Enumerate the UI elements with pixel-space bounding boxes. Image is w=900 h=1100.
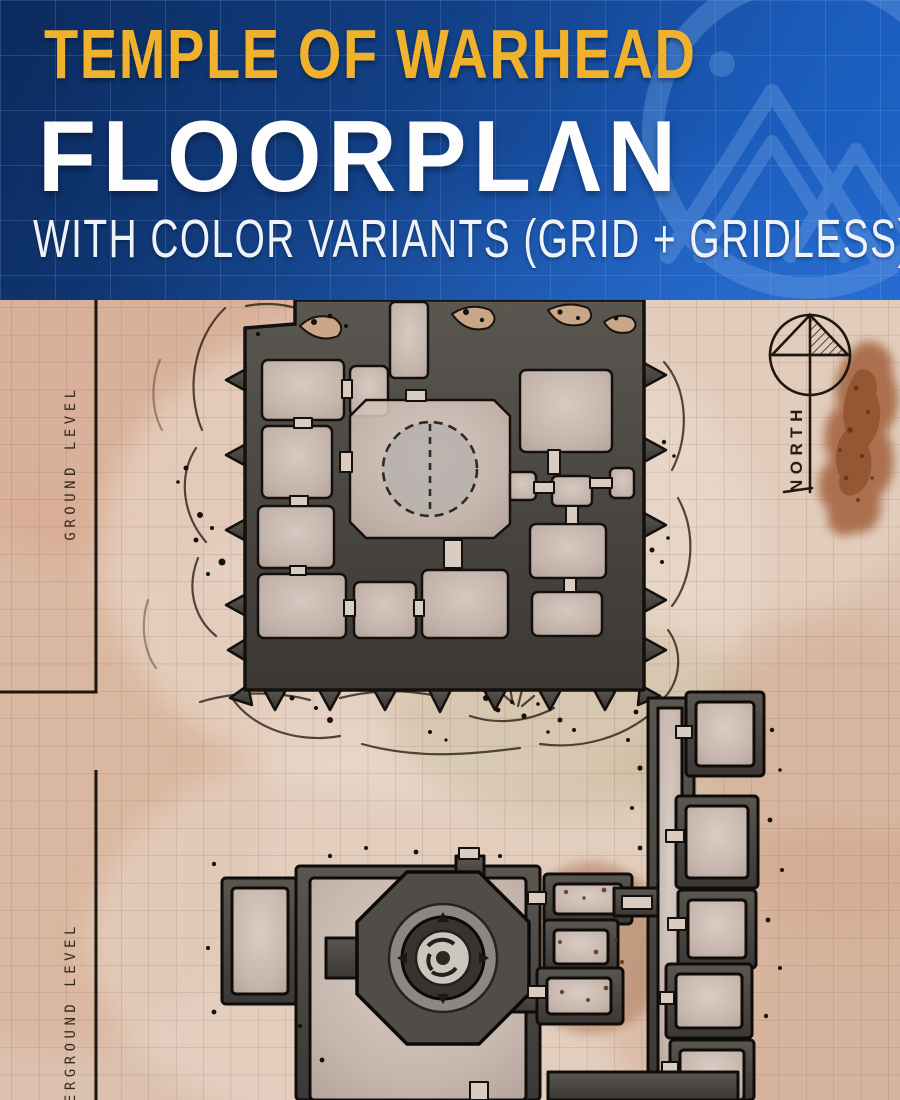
- poster: TEMPLE OF WARHEAD FLOORPLΛN WITH COLOR V…: [0, 0, 900, 1100]
- main-title: FLOORPLΛN: [38, 100, 683, 215]
- ground-level-plan: [226, 300, 666, 712]
- north-label: NORTH: [787, 404, 806, 492]
- temple-floorplan-svg: GROUND LEVEL UNDERGROUND LEVEL NORTH: [0, 300, 900, 1100]
- map-preview: GROUND LEVEL UNDERGROUND LEVEL NORTH: [0, 300, 900, 1100]
- bottom-wall: [548, 1072, 738, 1100]
- kicker-title: TEMPLE OF WARHEAD: [44, 14, 697, 94]
- central-circle-chamber: [383, 422, 477, 516]
- banner: TEMPLE OF WARHEAD FLOORPLΛN WITH COLOR V…: [0, 0, 900, 300]
- subtitle: WITH COLOR VARIANTS (GRID + GRIDLESS): [33, 208, 900, 270]
- ground-level-label: GROUND LEVEL: [63, 385, 79, 540]
- underground-level-label: UNDERGROUND LEVEL: [63, 922, 79, 1100]
